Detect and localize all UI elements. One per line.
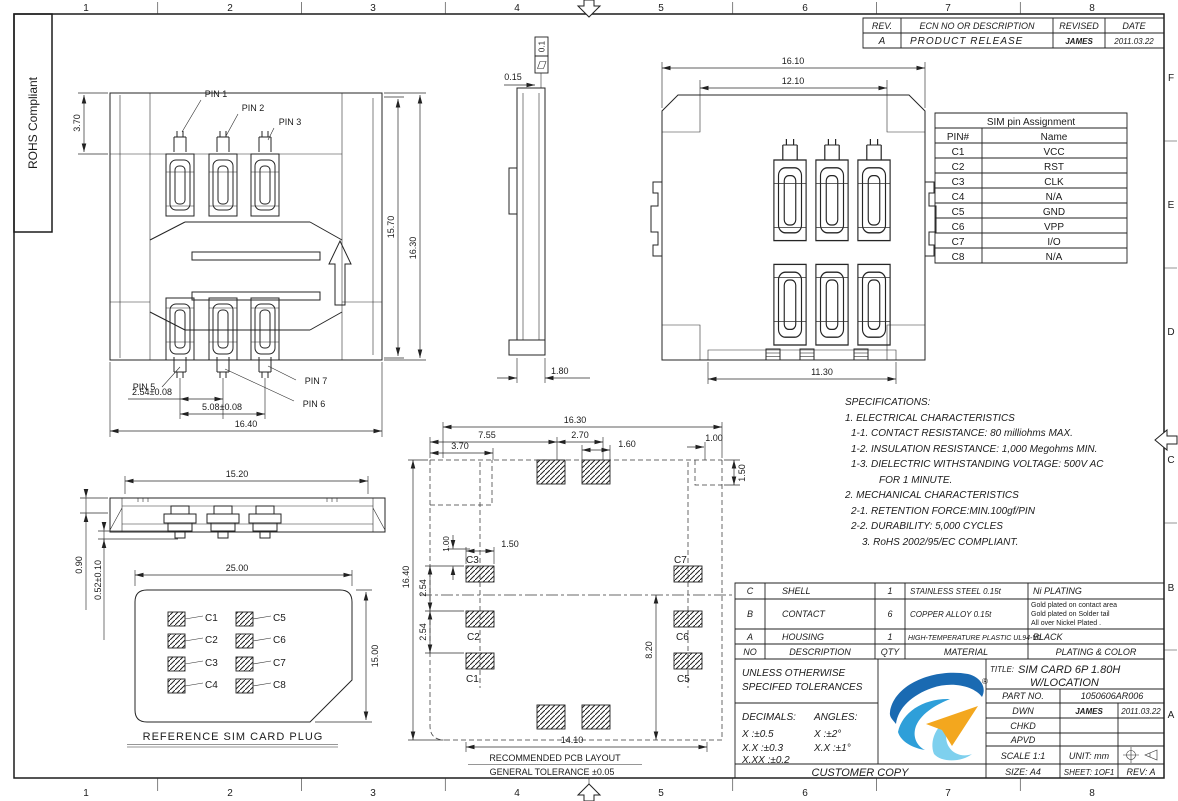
card-slot-rib xyxy=(192,252,320,260)
pcb-pad-label: C3 xyxy=(466,555,479,566)
front-view: PIN 1 PIN 2 PIN 3 PIN 5 PIN 6 PIN 7 3.70… xyxy=(72,89,426,437)
pin-cell: C2 xyxy=(952,162,965,173)
pin2-callout: PIN 2 xyxy=(242,103,265,113)
material-row-desc: HOUSING xyxy=(782,632,824,642)
insert-direction-arrow xyxy=(329,241,351,305)
name-cell: N/A xyxy=(1046,192,1063,203)
dim-card-width: 25.00 xyxy=(226,563,249,573)
pin7-callout: PIN 7 xyxy=(305,376,328,386)
zone-col-label: 3 xyxy=(370,3,376,14)
approved-label: APVD xyxy=(1010,735,1036,745)
dim-inner-height: 15.70 xyxy=(386,216,396,239)
material-header-qty: QTY xyxy=(881,647,900,657)
drawing-title-line1: SIM CARD 6P 1.80H xyxy=(1018,664,1120,676)
zone-col-label: 8 xyxy=(1089,788,1095,799)
sim-card-outline xyxy=(135,590,352,722)
title-block: UNLESS OTHERWISE SPECIFED TOLERANCES DEC… xyxy=(735,659,1164,779)
name-cell: I/O xyxy=(1047,237,1061,248)
pin-cell: C7 xyxy=(952,237,965,248)
zone-row-label: A xyxy=(1168,710,1175,721)
pin1-callout: PIN 1 xyxy=(205,89,228,99)
material-header-no: NO xyxy=(743,647,757,657)
material-row-plating: BLACK xyxy=(1033,632,1064,642)
dim-pin-pitch2: 5.08±0.08 xyxy=(202,402,242,412)
rohs-compliant-box: ROHS Compliant xyxy=(14,14,52,232)
zone-col-label: 8 xyxy=(1089,3,1095,14)
pcb-layout-view: C3 C7 C2 C6 C1 C5 16.30 7.55 2.70 1.60 1… xyxy=(401,415,747,777)
drawing-title-line2: W/LOCATION xyxy=(1030,677,1099,689)
material-row-mat: COPPER ALLOY 0.15t xyxy=(910,610,992,619)
rev-col-header: REV. xyxy=(872,21,892,31)
pin6-callout: PIN 6 xyxy=(303,399,326,409)
profile-view: 15.20 0.90 0.52±0.10 xyxy=(74,469,385,640)
dim-755: 7.55 xyxy=(478,430,496,440)
card-pad-label: C2 xyxy=(205,635,218,646)
pin3-callout: PIN 3 xyxy=(279,117,302,127)
spec-line: 1-2. INSULATION RESISTANCE: 1,000 Megohm… xyxy=(851,444,1097,455)
zone-col-label: 1 xyxy=(83,788,89,799)
material-row-desc: CONTACT xyxy=(782,609,826,619)
ecn-col-header: ECN NO OR DESCRIPTION xyxy=(919,21,1035,31)
spec-line: SPECIFICATIONS: xyxy=(845,397,931,408)
material-header-mat: MATERIAL xyxy=(944,647,988,657)
zone-col-label: 6 xyxy=(802,788,808,799)
pcb-pad-label: C7 xyxy=(674,555,687,566)
ecn-value: PRODUCT RELEASE xyxy=(910,36,1023,47)
dim-card-height: 15.00 xyxy=(370,645,380,668)
part-no-value: 1050606AR006 xyxy=(1081,691,1144,701)
dim-bottom-width: 11.30 xyxy=(811,367,833,377)
flatness-tolerance-value: 0.1 xyxy=(538,40,547,52)
title-label: TITLE: xyxy=(990,665,1014,674)
pcb-caption: RECOMMENDED PCB LAYOUT xyxy=(489,753,621,763)
spec-line: 2. MECHANICAL CHARACTERISTICS xyxy=(844,490,1019,501)
zone-col-label: 4 xyxy=(514,788,520,799)
rohs-label: ROHS Compliant xyxy=(26,76,40,169)
material-header-plating: PLATING & COLOR xyxy=(1056,647,1137,657)
customer-copy-label: CUSTOMER COPY xyxy=(812,767,910,779)
material-row-no: B xyxy=(747,609,753,619)
material-row-plating: Ni PLATING xyxy=(1033,586,1082,596)
material-header-desc: DESCRIPTION xyxy=(789,647,851,657)
name-cell: CLK xyxy=(1044,177,1064,188)
pin-cell: C6 xyxy=(952,222,965,233)
center-mark-arrow-right xyxy=(1155,430,1177,450)
open-view: 16.10 12.10 11.30 xyxy=(651,56,936,384)
card-pad-label: C8 xyxy=(273,680,286,691)
spec-line: 1-3. DIELECTRIC WITHSTANDING VOLTAGE: 50… xyxy=(851,459,1104,470)
dim-step-height: 3.70 xyxy=(72,114,82,132)
zone-col-label: 7 xyxy=(945,3,951,14)
dim-solder-tail: 0.52±0.10 xyxy=(93,560,103,600)
dim-370: 3.70 xyxy=(451,441,469,451)
card-pad-label: C4 xyxy=(205,680,218,691)
name-cell: VPP xyxy=(1044,222,1064,233)
dim-profile-width: 15.20 xyxy=(226,469,249,479)
dim-270: 2.70 xyxy=(571,430,589,440)
pin-cell: C8 xyxy=(952,252,965,263)
pin-cell: C1 xyxy=(952,147,965,158)
angle-tolerance-1: X :±2° xyxy=(813,729,841,740)
pcb-pad-label: C5 xyxy=(677,674,690,685)
dim-total-height: 16.30 xyxy=(408,237,418,260)
pin-table-title: SIM pin Assignment xyxy=(987,117,1076,128)
zone-col-label: 1 xyxy=(83,3,89,14)
pin-col-header: PIN# xyxy=(947,132,970,143)
tolerance-note-line1: UNLESS OTHERWISE xyxy=(742,668,845,679)
zone-row-labels-right: F E D C B A xyxy=(1167,73,1174,721)
dim-254-b: 2.54 xyxy=(418,623,428,641)
dim-shell-width: 16.10 xyxy=(782,56,805,66)
dim-160: 1.60 xyxy=(618,439,636,449)
specifications-block: SPECIFICATIONS: 1. ELECTRICAL CHARACTERI… xyxy=(844,397,1104,548)
dim-150-right: 1.50 xyxy=(737,464,747,482)
name-cell: GND xyxy=(1043,207,1065,218)
zone-col-label: 6 xyxy=(802,3,808,14)
sheet-label: SHEET: 1OF1 xyxy=(1064,768,1115,777)
decimal-tolerance-2: X.X :±0.3 xyxy=(741,743,784,754)
name-cell: VCC xyxy=(1043,147,1064,158)
profile-outline xyxy=(110,498,385,532)
zone-row-label: B xyxy=(1168,583,1175,594)
material-row-desc: SHELL xyxy=(782,586,811,596)
spec-line: 2-1. RETENTION FORCE:MIN.100gf/PIN xyxy=(850,506,1036,517)
material-row-qty: 1 xyxy=(887,586,892,596)
company-logo: ® xyxy=(890,673,988,761)
dim-1410: 14.10 xyxy=(561,735,584,745)
card-slot-rib xyxy=(192,292,320,300)
angles-label: ANGLES: xyxy=(813,712,858,723)
decimals-label: DECIMALS: xyxy=(742,712,796,723)
dim-pcb-total-width: 16.30 xyxy=(564,415,587,425)
rev-value: A xyxy=(878,36,886,47)
material-table: C SHELL 1 STAINLESS STEEL 0.15t Ni PLATI… xyxy=(735,583,1164,659)
revised-value: JAMES xyxy=(1065,37,1093,46)
name-cell: N/A xyxy=(1046,252,1063,263)
dim-pcb-total-height: 16.40 xyxy=(401,566,411,589)
card-pad-label: C6 xyxy=(273,635,286,646)
side-profile-outline xyxy=(517,88,545,340)
revised-col-header: REVISED xyxy=(1059,21,1099,31)
decimal-tolerance-1: X :±0.5 xyxy=(741,729,774,740)
zone-col-label: 2 xyxy=(227,788,233,799)
dim-150-pad: 1.50 xyxy=(501,539,519,549)
spec-line: 3. RoHS 2002/95/EC COMPLIANT. xyxy=(862,537,1018,548)
pcb-pad-label: C1 xyxy=(466,674,479,685)
drawn-by-value: JAMES xyxy=(1075,707,1103,716)
unit-label: UNIT: mm xyxy=(1069,751,1110,761)
material-row-qty: 1 xyxy=(887,632,892,642)
center-mark-arrow-bottom xyxy=(578,784,600,801)
pcb-outline xyxy=(430,460,722,740)
card-pad-label: C1 xyxy=(205,613,218,624)
name-cell: RST xyxy=(1044,162,1064,173)
zone-col-label: 3 xyxy=(370,788,376,799)
contact-plating-line: Gold plated on Solder tail xyxy=(1031,611,1110,618)
material-row-mat: HIGH-TEMPERATURE PLASTIC UL94-V0 xyxy=(908,635,1041,642)
drawn-date-value: 2011.03.22 xyxy=(1120,707,1161,716)
cad-canvas: 1 2 3 4 5 6 7 8 1 2 3 4 5 6 7 8 F E D C … xyxy=(0,0,1178,801)
name-col-header: Name xyxy=(1041,132,1068,143)
card-pad-label: C5 xyxy=(273,613,286,624)
checked-label: CHKD xyxy=(1010,721,1036,731)
pcb-pad-label: C6 xyxy=(676,632,689,643)
tolerance-note-line2: SPECIFED TOLERANCES xyxy=(742,682,863,693)
rev-label: REV: A xyxy=(1126,767,1155,777)
material-row-mat: STAINLESS STEEL 0.15t xyxy=(910,587,1002,596)
zone-col-label: 5 xyxy=(658,3,664,14)
material-row-no: A xyxy=(746,632,753,642)
zone-col-label: 4 xyxy=(514,3,520,14)
card-pad-label: C3 xyxy=(205,658,218,669)
revision-table: REV. ECN NO OR DESCRIPTION REVISED DATE … xyxy=(863,18,1164,48)
zone-col-label: 2 xyxy=(227,3,233,14)
spec-line: FOR 1 MINUTE. xyxy=(879,475,952,486)
sim-card-plug-view: 25.00 15.00 C1 C2 C3 C4 C5 C6 C7 C8 REFE… xyxy=(127,563,380,747)
flatness-symbol-icon xyxy=(538,62,547,69)
dim-100-left: 1.00 xyxy=(442,536,451,552)
part-no-label: PART NO. xyxy=(1002,691,1044,701)
sim-pin-assignment-table: SIM pin Assignment PIN# Name C1 VCC C2 R… xyxy=(935,113,1127,263)
card-view-caption: REFERENCE SIM CARD PLUG xyxy=(143,731,324,743)
dim-254-a: 2.54 xyxy=(418,579,428,597)
dim-100-top: 1.00 xyxy=(705,433,723,443)
contact-plating-line: Gold plated on contact area xyxy=(1031,602,1117,609)
dim-total-width: 16.40 xyxy=(235,419,258,429)
zone-row-label: D xyxy=(1167,327,1174,338)
side-view: 0.1 0.15 1.80 xyxy=(497,37,590,383)
zone-col-label: 5 xyxy=(658,788,664,799)
zone-row-label: C xyxy=(1167,455,1174,466)
spec-line: 1-1. CONTACT RESISTANCE: 80 milliohms MA… xyxy=(851,428,1073,439)
spec-line: 1. ELECTRICAL CHARACTERISTICS xyxy=(845,413,1015,424)
dim-profile-height: 0.90 xyxy=(74,556,84,574)
pin-cell: C3 xyxy=(952,177,965,188)
date-col-header: DATE xyxy=(1122,21,1146,31)
dim-820: 8.20 xyxy=(644,641,654,659)
size-label: SIZE: A4 xyxy=(1005,767,1041,777)
projection-angle-icon xyxy=(1123,747,1157,763)
pcb-tolerance-note: GENERAL TOLERANCE ±0.05 xyxy=(490,767,615,777)
material-row-no: C xyxy=(747,586,754,596)
dim-opening-width: 12.10 xyxy=(782,76,805,86)
zone-col-label: 7 xyxy=(945,788,951,799)
connector-body-outline xyxy=(110,93,382,360)
pin-cell: C5 xyxy=(952,207,965,218)
dim-foot-length: 1.80 xyxy=(551,366,569,376)
drawing-sheet: 1 2 3 4 5 6 7 8 1 2 3 4 5 6 7 8 F E D C … xyxy=(0,0,1178,801)
card-pad-label: C7 xyxy=(273,658,286,669)
decimal-tolerance-3: X.XX :±0.2 xyxy=(741,755,790,766)
date-value: 2011.03.22 xyxy=(1113,37,1154,46)
pcb-pad-label: C2 xyxy=(467,632,480,643)
registered-trademark-icon: ® xyxy=(982,677,988,686)
pin-cell: C4 xyxy=(952,192,965,203)
drawn-label: DWN xyxy=(1012,706,1034,716)
dim-pin-pitch: 2.54±0.08 xyxy=(132,387,172,397)
material-row-qty: 6 xyxy=(887,609,892,619)
scale-label: SCALE 1:1 xyxy=(1001,751,1046,761)
contact-plating-line: All over Nickel Plated . xyxy=(1031,620,1101,627)
dim-shell-gap: 0.15 xyxy=(504,72,522,82)
spec-line: 2-2. DURABILITY: 5,000 CYCLES xyxy=(850,521,1003,532)
zone-row-label: E xyxy=(1168,200,1175,211)
zone-row-label: F xyxy=(1168,73,1174,84)
angle-tolerance-2: X.X :±1° xyxy=(813,743,851,754)
